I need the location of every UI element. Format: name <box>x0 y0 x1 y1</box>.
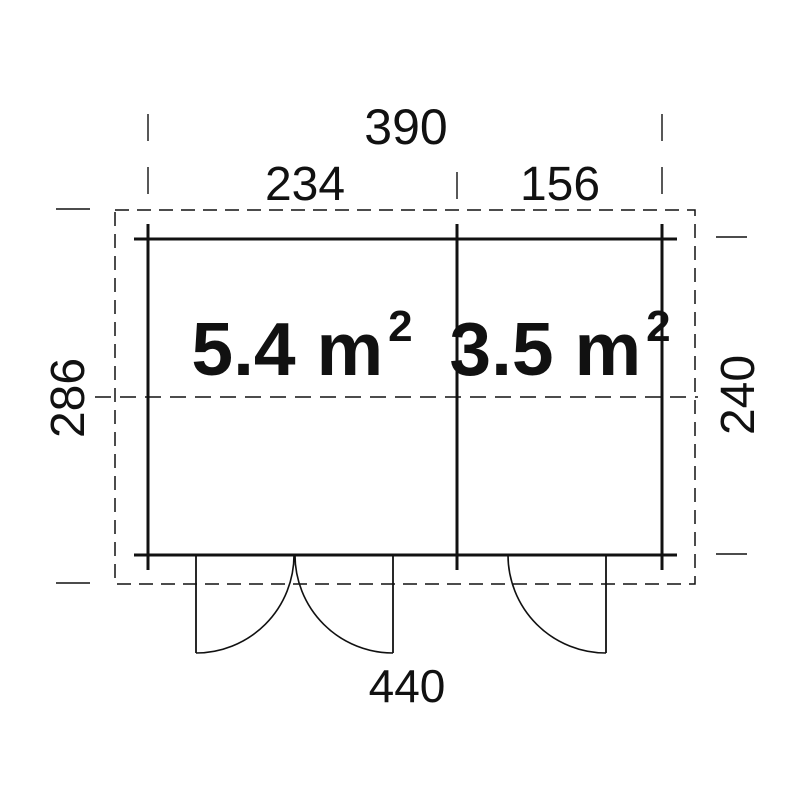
room-area-label-left: 5.4 m2 <box>191 302 412 391</box>
room-area-value-right: 3.5 m <box>449 307 641 391</box>
room-area-exponent-left: 2 <box>388 302 412 351</box>
double-door-left-swing-arc <box>196 555 294 653</box>
room-area-label-right: 3.5 m2 <box>449 302 670 391</box>
floor-plan-drawing: 390 234 156 286 240 440 5.4 m2 3.5 m2 <box>0 0 800 800</box>
double-door-right-swing-arc <box>295 555 393 653</box>
dim-left-section-label: 234 <box>265 158 345 211</box>
room-area-exponent-right: 2 <box>646 302 670 351</box>
dim-outer-depth-label: 286 <box>42 358 95 438</box>
dim-base-width-label: 440 <box>369 660 446 712</box>
dim-inner-depth-label: 240 <box>712 355 765 435</box>
single-door-swing-arc <box>508 555 606 653</box>
room-area-value-left: 5.4 m <box>191 307 383 391</box>
dim-overall-width-label: 390 <box>364 99 447 155</box>
dim-right-section-label: 156 <box>520 158 600 211</box>
floor-plan-canvas: 390 234 156 286 240 440 5.4 m2 3.5 m2 <box>0 0 800 800</box>
